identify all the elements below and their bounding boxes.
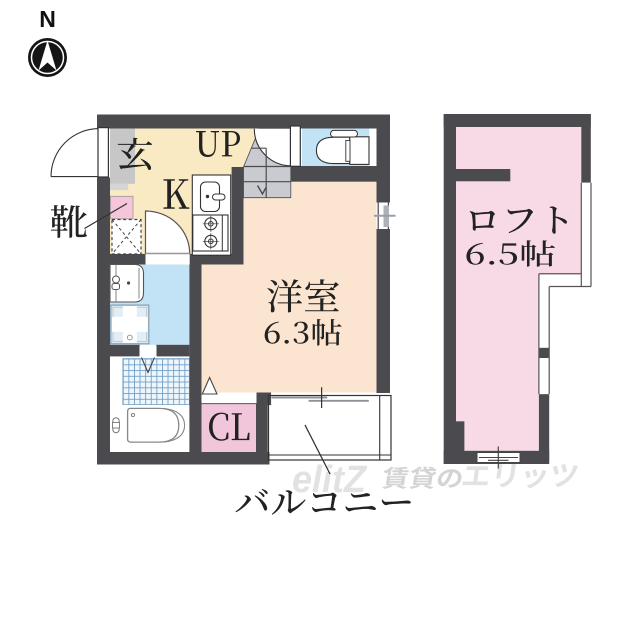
svg-text:N: N [39, 6, 56, 32]
